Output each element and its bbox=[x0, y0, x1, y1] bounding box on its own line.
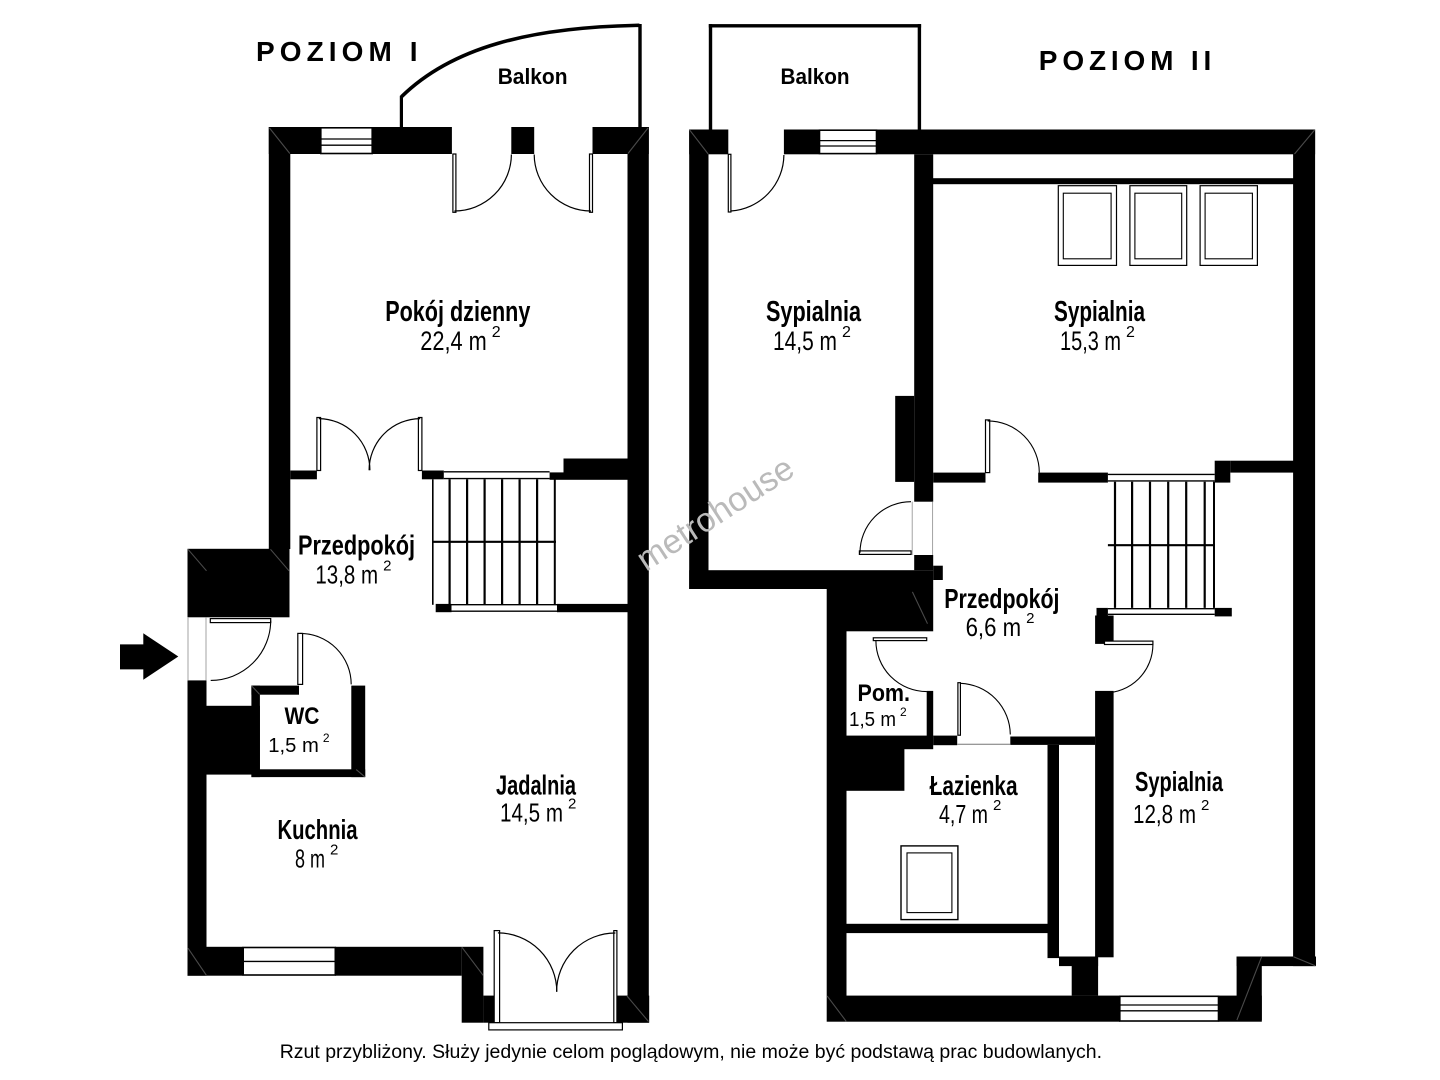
svg-text:WC: WC bbox=[285, 703, 320, 730]
svg-text:Przedpokój: Przedpokój bbox=[298, 530, 415, 561]
svg-text:Pokój dzienny: Pokój dzienny bbox=[385, 296, 530, 328]
svg-text:Przedpokój: Przedpokój bbox=[944, 583, 1059, 614]
svg-text:Balkon: Balkon bbox=[498, 64, 568, 89]
svg-text:Balkon: Balkon bbox=[781, 64, 850, 89]
svg-text:Rzut przybliżony. Służy jedyni: Rzut przybliżony. Służy jedynie celom po… bbox=[280, 1041, 1102, 1063]
svg-text:Kuchnia: Kuchnia bbox=[278, 814, 358, 845]
svg-text:POZIOM II: POZIOM II bbox=[1039, 45, 1212, 76]
svg-text:Jadalnia: Jadalnia bbox=[496, 770, 576, 801]
svg-text:Pom.: Pom. bbox=[858, 680, 911, 707]
svg-text:Sypialnia: Sypialnia bbox=[1135, 766, 1223, 797]
svg-text:Łazienka: Łazienka bbox=[930, 770, 1018, 801]
